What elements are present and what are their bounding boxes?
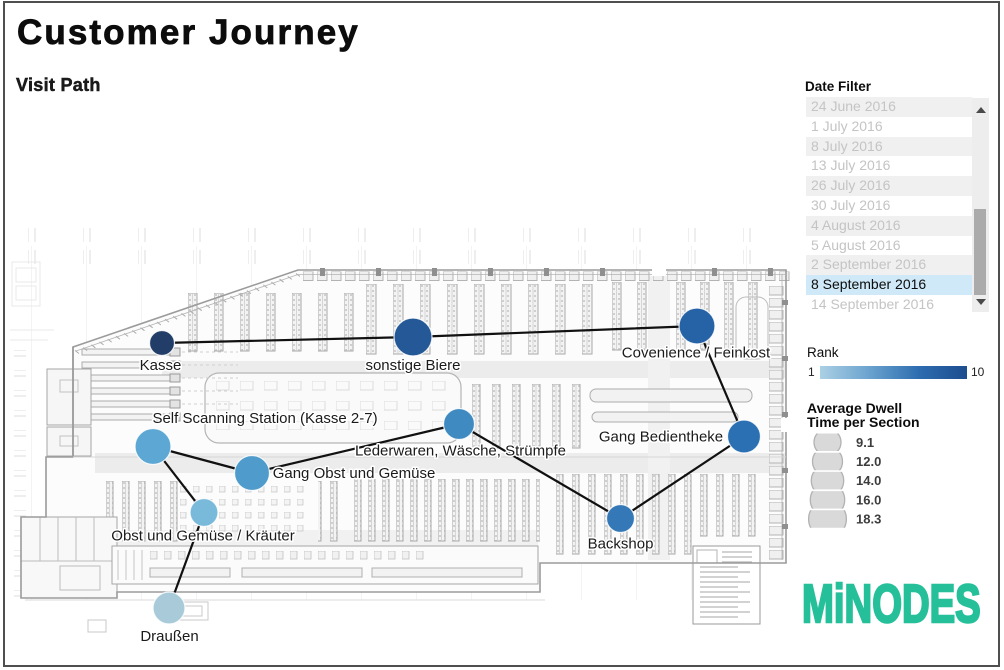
svg-text:MiNODES: MiNODES [802,578,981,628]
svg-text:12.0: 12.0 [856,454,881,469]
svg-text:sonstige Biere: sonstige Biere [365,357,460,374]
svg-text:Gang Bedientheke: Gang Bedientheke [599,428,723,445]
svg-text:14.0: 14.0 [856,473,881,488]
svg-text:Gang Obst und Gemüse: Gang Obst und Gemüse [273,465,436,482]
svg-text:Self Scanning Station (Kasse 2: Self Scanning Station (Kasse 2-7) [152,410,377,427]
svg-text:18.3: 18.3 [856,512,881,527]
svg-text:Draußen: Draußen [140,628,198,645]
svg-text:Obst und Gemüse / Kräuter: Obst und Gemüse / Kräuter [111,527,294,544]
svg-text:9.1: 9.1 [856,435,874,450]
svg-text:16.0: 16.0 [856,492,881,507]
svg-text:Backshop: Backshop [588,535,654,552]
svg-text:Covenience / Feinkost: Covenience / Feinkost [622,344,771,361]
svg-text:Kasse: Kasse [140,357,182,374]
svg-text:Lederwaren, Wäsche, Strümpfe: Lederwaren, Wäsche, Strümpfe [355,442,566,459]
